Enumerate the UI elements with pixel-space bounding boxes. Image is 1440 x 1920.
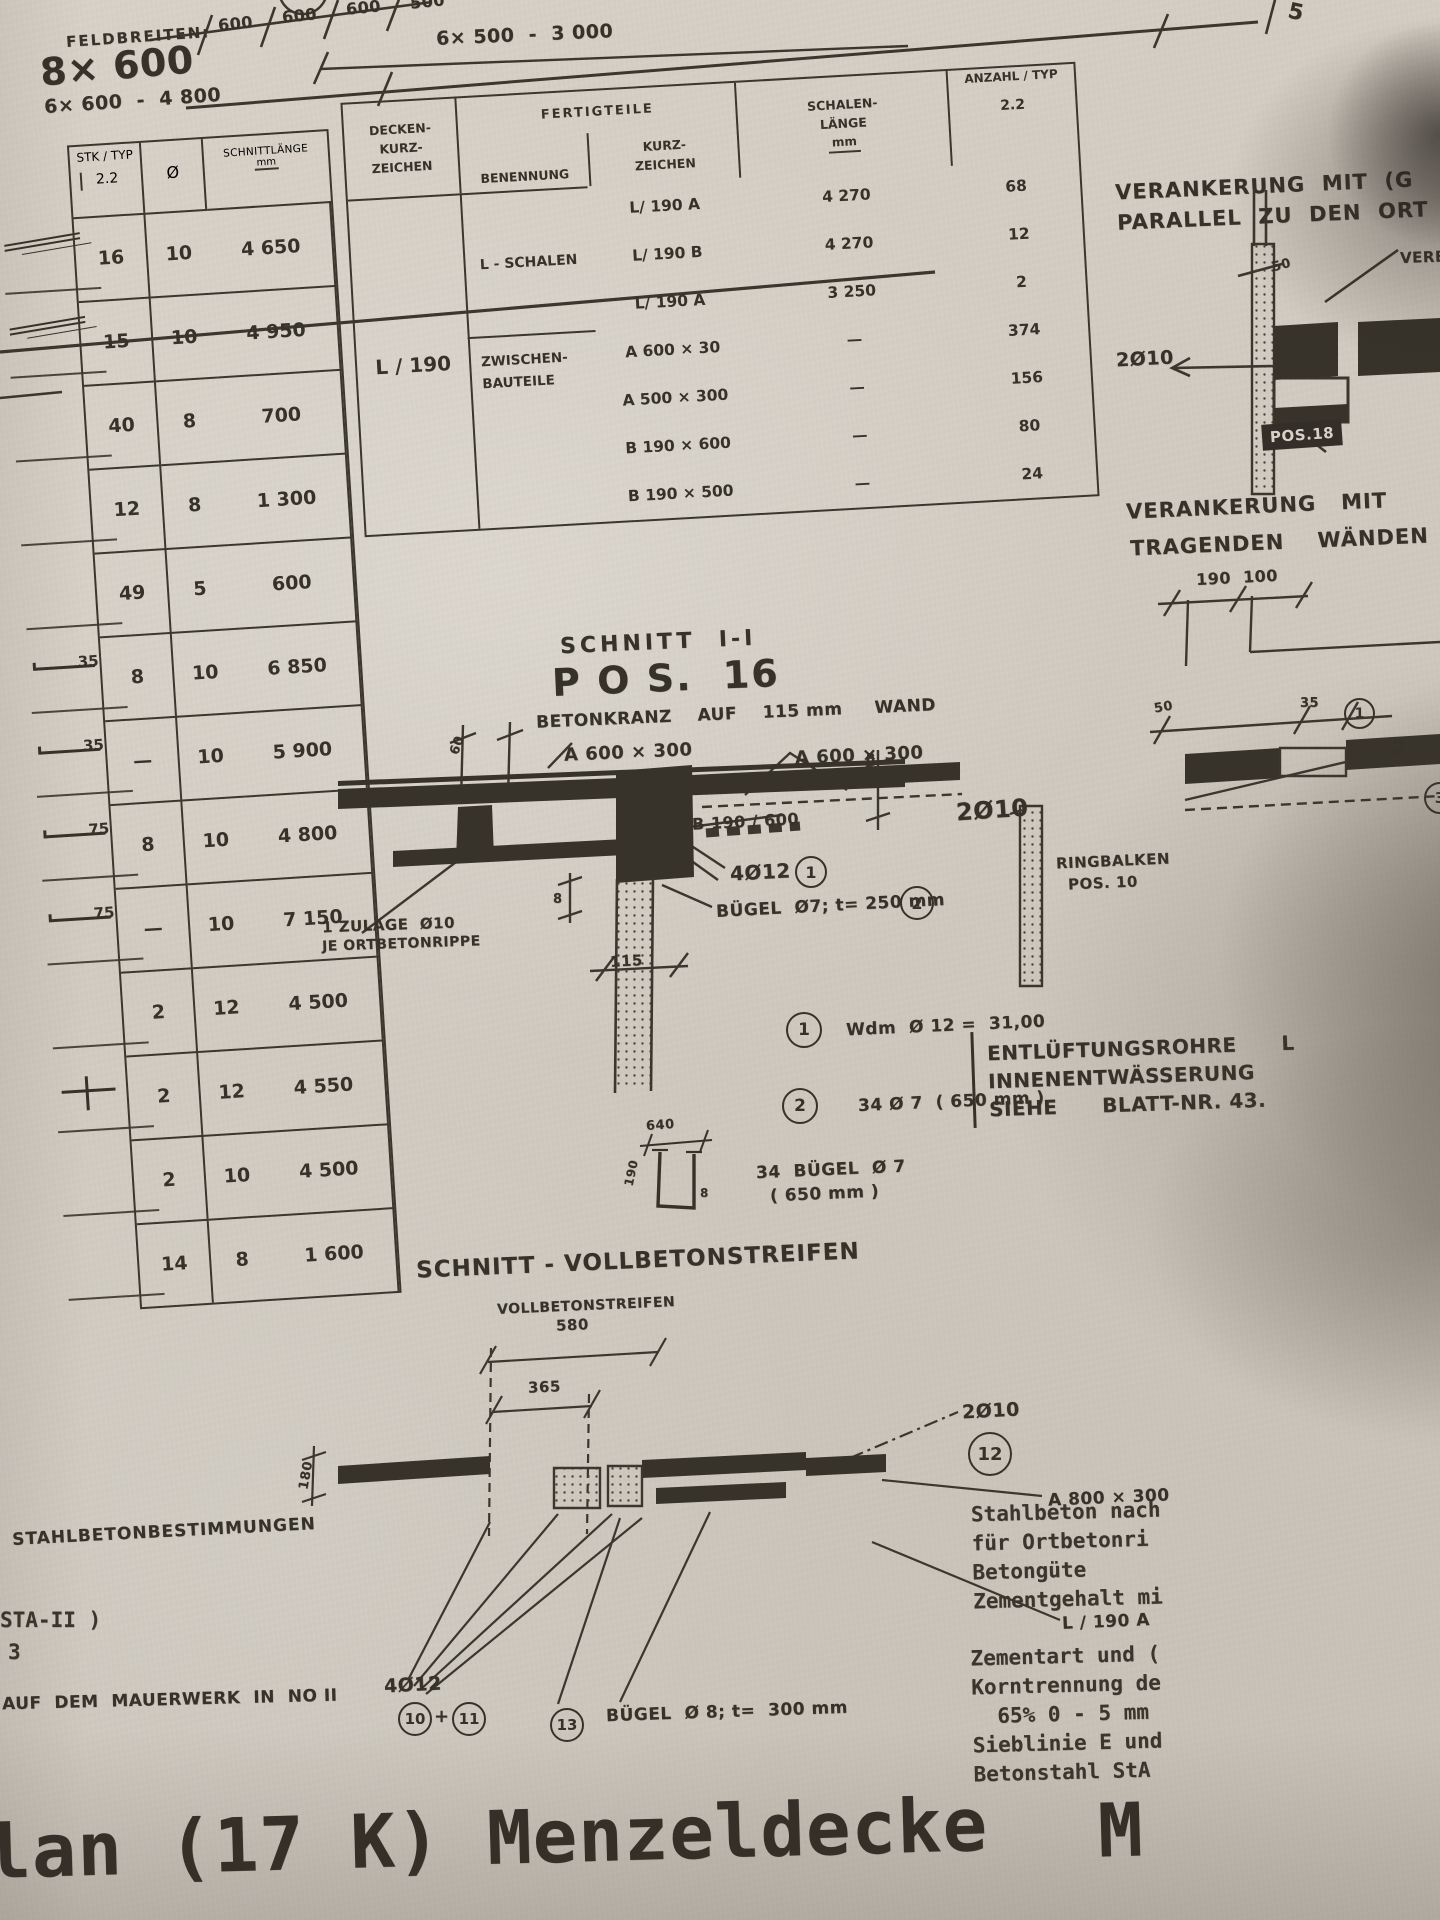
cell-diameter: 5: [166, 544, 233, 632]
dim-35-detail2: 35: [1300, 696, 1319, 711]
callout-10: 10: [398, 1702, 432, 1736]
header-kurzzeichen: KURZ-ZEICHEN: [587, 125, 742, 186]
stirrup-dim-top: 640: [646, 1117, 676, 1134]
ringbalken-drawing: [950, 690, 1440, 1000]
col-header-stk: STK / TYP 2.2: [69, 143, 145, 217]
rebar-shape-label: 35: [77, 652, 99, 671]
cell-group-zwischenbauteile: ZWISCHEN-BAUTEILE: [468, 330, 607, 529]
cell-diameter: 8: [209, 1215, 276, 1303]
spec-block-2: Zementart und ( Korntrennung de 65% 0 - …: [970, 1640, 1163, 1790]
stirrup-dim-right: 8: [700, 1186, 709, 1200]
cell-diameter: 10: [151, 293, 218, 381]
note1-circle: 1: [786, 1012, 822, 1048]
label-2d10-s2: 2Ø10: [961, 1399, 1020, 1424]
plus-sign: +: [434, 1706, 450, 1727]
cell-length: 4 500: [265, 1123, 394, 1215]
cell-stk: 15: [79, 297, 156, 385]
cell-diameter: 12: [198, 1047, 265, 1135]
callout-13: 13: [550, 1708, 584, 1742]
cell-stk: 12: [89, 464, 166, 552]
spec-block-1: Stahlbeton nach für Ortbetonri Betongüte…: [971, 1496, 1164, 1617]
cell-stk: 2: [131, 1135, 208, 1223]
cell-diameter: 10: [187, 879, 254, 967]
cell-stk: 40: [84, 380, 161, 468]
cell-diameter: 10: [182, 796, 249, 884]
detail1-arrow: [1168, 352, 1278, 382]
col-header-diameter: Ø: [141, 139, 207, 213]
header-fertigteile: FERTIGTEILE BENENNUNG KURZ-ZEICHEN: [454, 83, 739, 193]
callout-2: 2: [900, 886, 934, 920]
cell-kurzzeichen: L/ 190 B: [590, 226, 744, 282]
col-header-schnittlaenge: SCHNITTLÄNGE mm: [203, 131, 331, 209]
entlueftung-note: ENTLÜFTUNGSROHRE L INNENENTWÄSSERUNG SIE…: [987, 1029, 1297, 1124]
cell-diameter: 10: [145, 209, 212, 297]
cell-length: 700: [218, 369, 347, 461]
cell-kurzzeichen: L/ 190 A: [593, 274, 747, 330]
cell-anzahl: 24: [967, 446, 1097, 501]
cell-stk: —: [116, 883, 193, 971]
rebar-shape-label: 35: [82, 736, 104, 755]
top-dim-600-1: 600: [217, 12, 254, 35]
cell-stk: 16: [73, 213, 150, 301]
label-ringbalken-pos: POS. 10: [1068, 872, 1139, 893]
cell-stk: 49: [95, 548, 172, 636]
cell-anzahl: 68: [951, 159, 1081, 214]
stirrup-sketch: [628, 1130, 758, 1230]
cell-stk: 8: [110, 800, 187, 888]
rebar-shape-icon: [62, 1088, 116, 1094]
fertigteile-table: DECKEN- KURZ- ZEICHEN FERTIGTEILE BENENN…: [340, 62, 1099, 537]
cell-stk: 2: [126, 1051, 203, 1139]
top-dim-600-2: 600: [281, 4, 318, 27]
cell-diameter: 8: [156, 376, 223, 464]
cell-length: 1 300: [223, 453, 352, 545]
callout-1-detail2: 1: [1344, 698, 1375, 729]
cell-diameter: 10: [203, 1131, 270, 1219]
cell-length: 4 650: [207, 201, 336, 293]
label-4d12-s2: 4Ø12: [383, 1673, 442, 1698]
cell-kurzzeichen: A 500 × 300: [598, 369, 752, 425]
cell-decken-value: L / 190: [348, 193, 479, 535]
note2-circle: 2: [782, 1088, 818, 1124]
label-2d10-detail1: 2Ø10: [1115, 347, 1174, 372]
cell-diameter: 10: [177, 712, 244, 800]
cell-stk: 2: [121, 967, 198, 1055]
rebar-shape-icon: [4, 232, 80, 252]
callout-1: 1: [795, 856, 827, 888]
cell-diameter: 10: [172, 628, 239, 716]
header-anzahl-typ: ANZAHL / TYP 2.2: [946, 64, 1079, 166]
rebar-shape-icon: [10, 316, 86, 336]
cell-kurzzeichen: B 190 × 500: [604, 465, 758, 521]
label-verbr: VERBR: [1400, 247, 1440, 267]
cell-stk: 14: [137, 1219, 214, 1307]
header-schalenlaenge: SCHALEN- LÄNGE mm: [734, 71, 951, 178]
cell-stk: 8: [100, 632, 177, 720]
spec-line: Zementgehalt mi: [973, 1583, 1163, 1617]
rebar-shape-label: 75: [88, 819, 110, 838]
rebar-shape-label: 75: [93, 903, 115, 922]
cell-anzahl: 156: [962, 350, 1092, 405]
callout-12: 12: [968, 1432, 1012, 1476]
label-2d10-ringbalken: 2Ø10: [955, 794, 1029, 827]
sta-note: STA-II ): [0, 1608, 101, 1632]
detail2-dim-lines: [1150, 588, 1440, 678]
cell-length: 1 600: [270, 1207, 399, 1299]
header-decken-kurzzeichen: DECKEN- KURZ- ZEICHEN: [343, 99, 460, 200]
cell-stk: —: [105, 716, 182, 804]
cell-kurzzeichen: B 190 × 600: [601, 417, 755, 473]
cell-anzahl: 2: [956, 255, 1086, 310]
callout-11: 11: [452, 1702, 486, 1736]
cell-anzahl: 80: [964, 398, 1094, 453]
label-4d12: 4Ø12: [729, 858, 791, 885]
detail1-drawing: [1230, 180, 1440, 520]
cell-group-lschalen: L - SCHALEN: [460, 186, 596, 337]
cell-diameter: 12: [193, 963, 260, 1051]
cell-anzahl: 12: [954, 207, 1084, 262]
plan-title-m: M: [1097, 1787, 1144, 1874]
dim-115: 115: [610, 951, 644, 971]
cell-anzahl: 374: [959, 303, 1089, 358]
e3-note: 3: [8, 1640, 21, 1664]
cell-diameter: 8: [161, 460, 228, 548]
dim-8-left: 8: [553, 892, 563, 907]
cell-kurzzeichen: A 600 × 30: [596, 322, 750, 378]
cell-kurzzeichen: L/ 190 A: [587, 178, 741, 234]
cell-length: 4 950: [212, 285, 341, 377]
header-benennung: BENENNUNG: [459, 133, 590, 193]
dim-8-right: 8: [866, 752, 876, 767]
spec-line: Betonstahl StA: [973, 1756, 1163, 1790]
